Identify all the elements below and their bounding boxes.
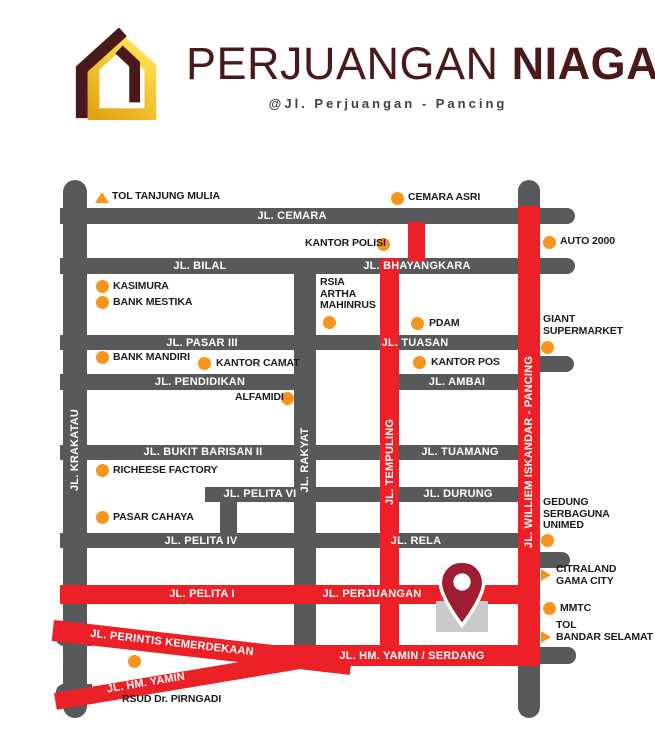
road-label-jl-durung: JL. DURUNG bbox=[423, 488, 492, 500]
road-jl-bilal-bhayangkara bbox=[60, 258, 575, 274]
poi-label-pdam: PDAM bbox=[429, 318, 460, 330]
road-label-jl-hm-yamin-serdang: JL. HM. YAMIN / SERDANG bbox=[339, 650, 484, 662]
poi-arrow-right-icon-citraland-gama-city bbox=[541, 569, 551, 581]
road-label-jl-pendidikan: JL. PENDIDIKAN bbox=[155, 376, 245, 388]
poi-label-kasimura: KASIMURA bbox=[113, 281, 169, 293]
road-label-jl-bukit-barisan-ii: JL. BUKIT BARISAN II bbox=[144, 446, 263, 458]
poi-dot-icon-mmtc bbox=[543, 602, 556, 615]
poi-dot-icon-cemara-asri bbox=[391, 192, 404, 205]
road-label-jl-pasar-iii: JL. PASAR III bbox=[166, 337, 237, 349]
road-label-jl-tuasan: JL. TUASAN bbox=[382, 337, 449, 349]
road-label-jl-bhayangkara: JL. BHAYANGKARA bbox=[363, 260, 470, 272]
poi-label-tol-bandar-selamat: TOL BANDAR SELAMAT bbox=[556, 620, 653, 643]
poi-arrow-right-icon-tol-bandar-selamat bbox=[541, 631, 551, 643]
poi-label-rsud-dr-pirngadi: RSUD Dr. PIRNGADI bbox=[122, 694, 221, 706]
poi-dot-icon-gedung-serbaguna-unimed bbox=[541, 534, 554, 547]
poi-dot-icon-kantor-camat bbox=[198, 357, 211, 370]
poi-dot-icon-bank-mestika bbox=[96, 296, 109, 309]
poi-dot-icon-pdam bbox=[411, 317, 424, 330]
poi-label-giant-supermarket: GIANT SUPERMARKET bbox=[543, 314, 623, 337]
poi-dot-icon-giant-supermarket bbox=[541, 341, 554, 354]
poi-label-gedung-serbaguna-unimed: GEDUNG SERBAGUNA UNIMED bbox=[543, 497, 610, 532]
road-pancing-south-stub bbox=[518, 664, 540, 718]
road-label-jl-tempuling: JL. TEMPULING bbox=[384, 419, 396, 505]
poi-label-bank-mestika: BANK MESTIKA bbox=[113, 297, 192, 309]
poi-label-auto-2000: AUTO 2000 bbox=[560, 236, 615, 248]
road-label-jl-rela: JL. RELA bbox=[391, 535, 442, 547]
poi-label-kantor-camat: KANTOR CAMAT bbox=[216, 358, 300, 370]
poi-label-mmtc: MMTC bbox=[560, 603, 591, 615]
poi-dot-icon-kantor-pos bbox=[413, 356, 426, 369]
road-label-jl-cemara: JL. CEMARA bbox=[257, 210, 326, 222]
poi-label-cemara-asri: CEMARA ASRI bbox=[408, 192, 480, 204]
poi-dot-icon-richeese-factory bbox=[96, 464, 109, 477]
road-label-jl-krakatau: JL. KRAKATAU bbox=[69, 409, 81, 491]
poi-label-alfamidi: ALFAMIDI bbox=[235, 392, 284, 404]
street-map: JL. CEMARAJL. BILALJL. BHAYANGKARAJL. PA… bbox=[0, 0, 655, 746]
road-jl-tempuling-north bbox=[408, 222, 425, 262]
poi-dot-icon-kasimura bbox=[96, 280, 109, 293]
road-jl-pasar-iii-tuasan bbox=[60, 335, 518, 350]
poi-label-pasar-cahaya: PASAR CAHAYA bbox=[113, 512, 194, 524]
map-flyer: PERJUANGAN NIAGA @Jl. Perjuangan - Panci… bbox=[0, 0, 655, 746]
poi-label-kantor-polisi: KANTOR POLISI bbox=[305, 238, 386, 250]
road-label-jl-bilal: JL. BILAL bbox=[173, 260, 226, 272]
poi-dot-icon-pasar-cahaya bbox=[96, 511, 109, 524]
poi-dot-icon-auto-2000 bbox=[543, 236, 556, 249]
poi-label-tol-tanjung-mulia: TOL TANJUNG MULIA bbox=[112, 191, 220, 203]
poi-label-kantor-pos: KANTOR POS bbox=[431, 357, 500, 369]
poi-dot-icon-rsia-artha-mahinrus bbox=[323, 316, 336, 329]
location-pin-icon bbox=[436, 556, 488, 634]
road-label-jl-williem-iskandar-pancing: JL. WILLIEM ISKANDAR - PANCING bbox=[523, 356, 535, 548]
poi-label-citraland-gama-city: CITRALAND GAMA CITY bbox=[556, 564, 616, 587]
road-label-jl-rakyat: JL. RAKYAT bbox=[299, 428, 311, 493]
road-label-jl-pelita-i: JL. PELITA I bbox=[169, 588, 234, 600]
road-label-jl-pelita-vi: JL. PELITA VI bbox=[224, 488, 297, 500]
road-label-jl-perjuangan: JL. PERJUANGAN bbox=[323, 588, 422, 600]
road-label-jl-ambai: JL. AMBAI bbox=[429, 376, 485, 388]
poi-label-bank-mandiri: BANK MANDIRI bbox=[113, 352, 190, 364]
poi-label-richeese-factory: RICHEESE FACTORY bbox=[113, 465, 218, 477]
road-jl-pelita-iv-rela bbox=[60, 533, 518, 548]
poi-arrow-up-icon-tol-tanjung-mulia bbox=[95, 192, 109, 203]
poi-dot-icon-bank-mandiri bbox=[96, 351, 109, 364]
road-label-jl-tuamang: JL. TUAMANG bbox=[421, 446, 498, 458]
road-label-jl-pelita-iv: JL. PELITA IV bbox=[165, 535, 238, 547]
poi-label-rsia-artha-mahinrus: RSIA ARTHA MAHINRUS bbox=[320, 277, 376, 312]
poi-dot-icon-rsud-dr-pirngadi bbox=[128, 655, 141, 668]
